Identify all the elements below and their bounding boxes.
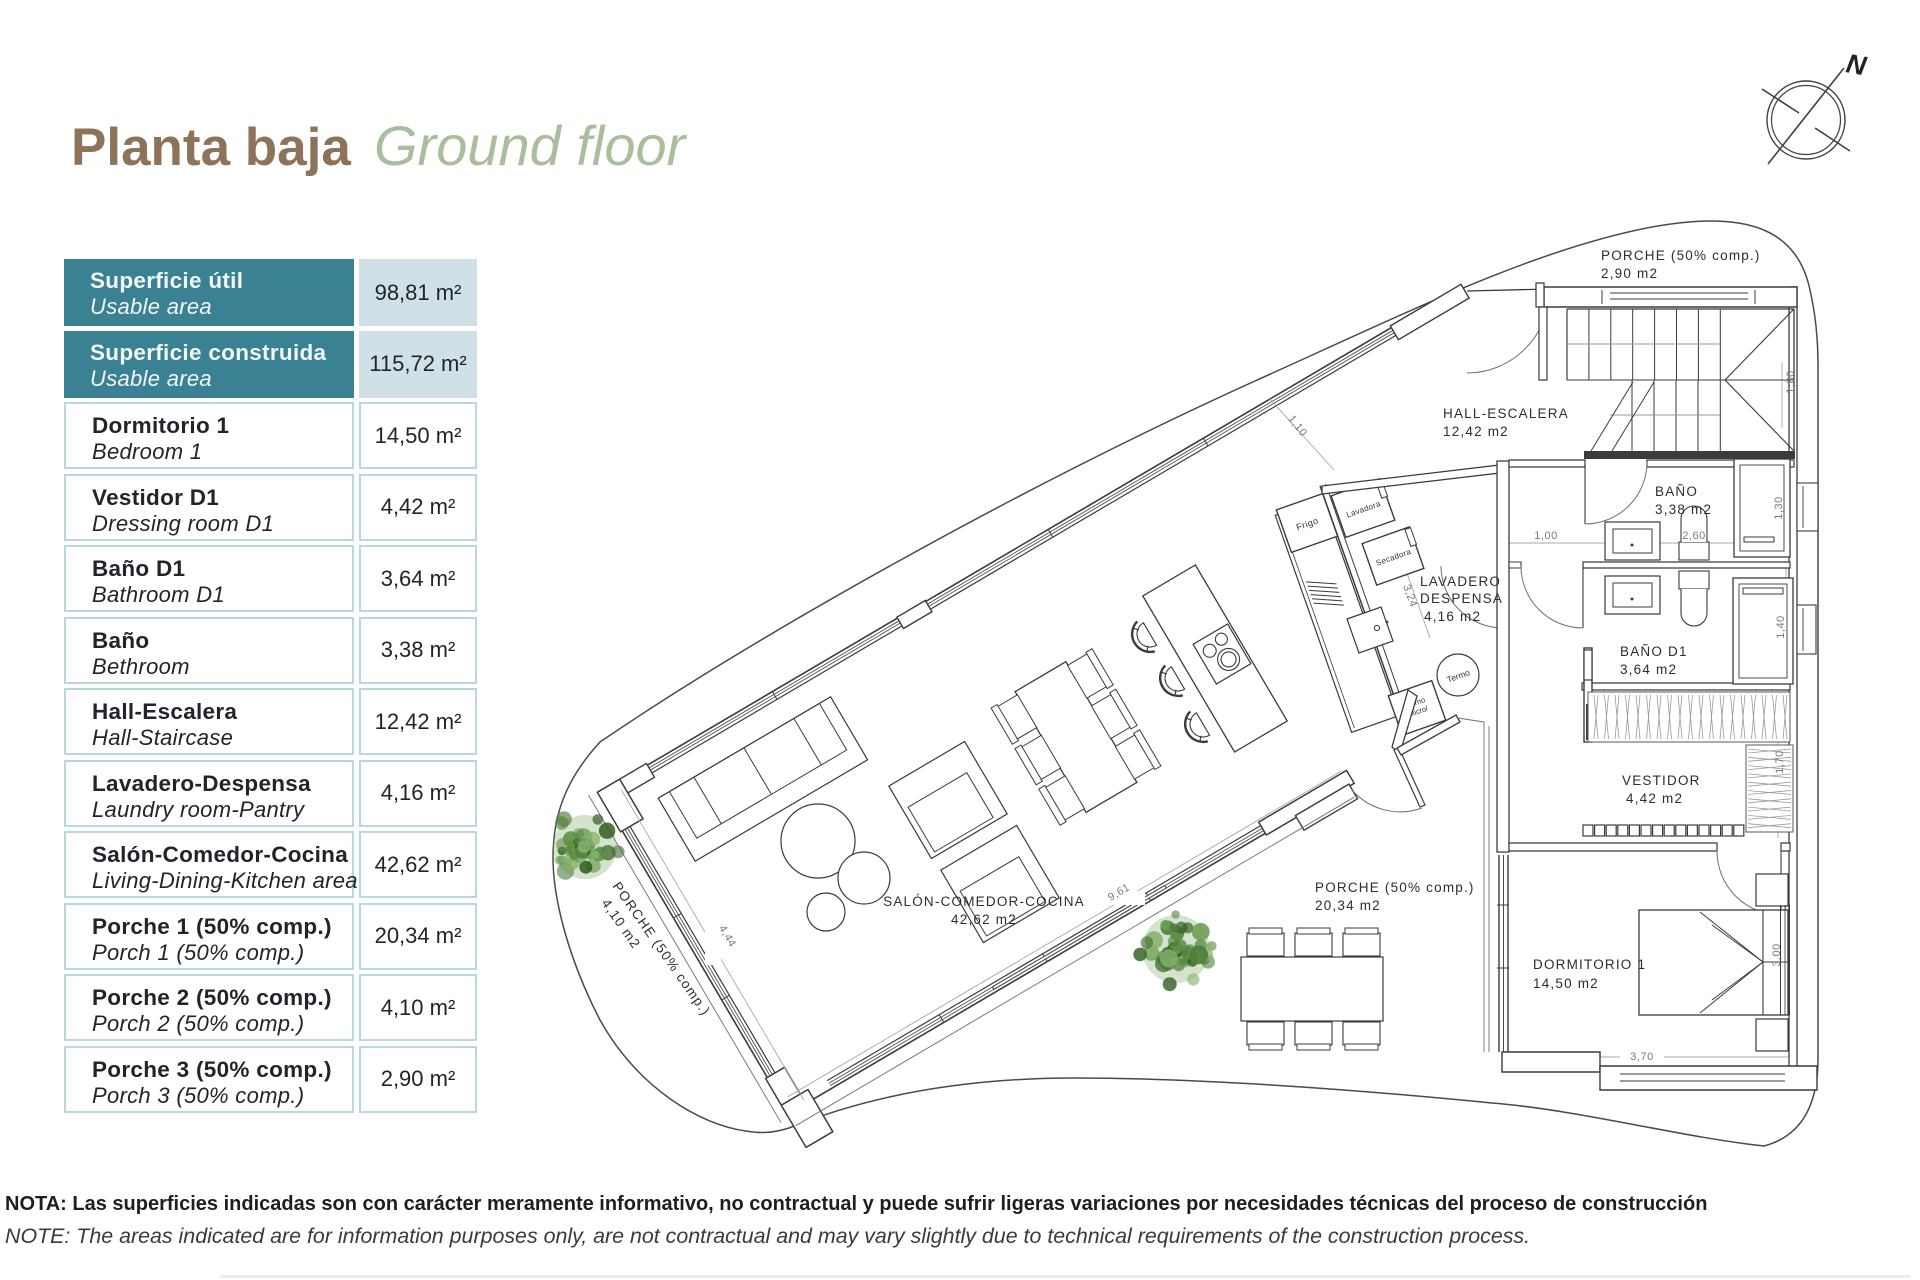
svg-text:LAVADERO: LAVADERO [1420,574,1501,589]
svg-text:3,70: 3,70 [1630,1051,1653,1063]
svg-text:HALL-ESCALERA: HALL-ESCALERA [1443,406,1569,421]
svg-text:4,42 m2: 4,42 m2 [1626,791,1683,806]
svg-text:3,00: 3,00 [1771,943,1783,966]
svg-text:N: N [1844,48,1869,81]
svg-text:1,10: 1,10 [1285,413,1309,439]
svg-text:20,34 m2: 20,34 m2 [1315,898,1381,913]
svg-text:2,90 m2: 2,90 m2 [1601,266,1658,281]
svg-text:3,24: 3,24 [1400,583,1419,609]
svg-text:3,38 m2: 3,38 m2 [1655,502,1712,517]
svg-text:4,16 m2: 4,16 m2 [1424,609,1481,624]
svg-text:12,42 m2: 12,42 m2 [1443,424,1509,439]
svg-text:14,50 m2: 14,50 m2 [1533,976,1599,991]
svg-text:BAÑO: BAÑO [1655,484,1698,499]
svg-text:42,62 m2: 42,62 m2 [951,912,1017,927]
svg-text:1,00: 1,00 [1534,530,1557,542]
svg-text:1,40: 1,40 [1775,615,1787,638]
svg-text:SALÓN-COMEDOR-COCINA: SALÓN-COMEDOR-COCINA [883,894,1085,909]
svg-text:1,30: 1,30 [1773,496,1785,519]
svg-text:2,60: 2,60 [1682,530,1705,542]
svg-text:DORMITORIO 1: DORMITORIO 1 [1533,957,1646,972]
svg-text:3,64 m2: 3,64 m2 [1620,662,1677,677]
svg-text:PORCHE (50% comp.): PORCHE (50% comp.) [610,879,714,1018]
svg-text:PORCHE (50% comp.): PORCHE (50% comp.) [1315,880,1475,895]
svg-text:1,80: 1,80 [1785,370,1797,393]
svg-text:BAÑO D1: BAÑO D1 [1620,644,1688,659]
svg-text:PORCHE (50% comp.): PORCHE (50% comp.) [1601,248,1761,263]
svg-text:DESPENSA: DESPENSA [1420,591,1503,606]
svg-text:1,70: 1,70 [1774,750,1786,773]
svg-text:VESTIDOR: VESTIDOR [1622,773,1701,788]
